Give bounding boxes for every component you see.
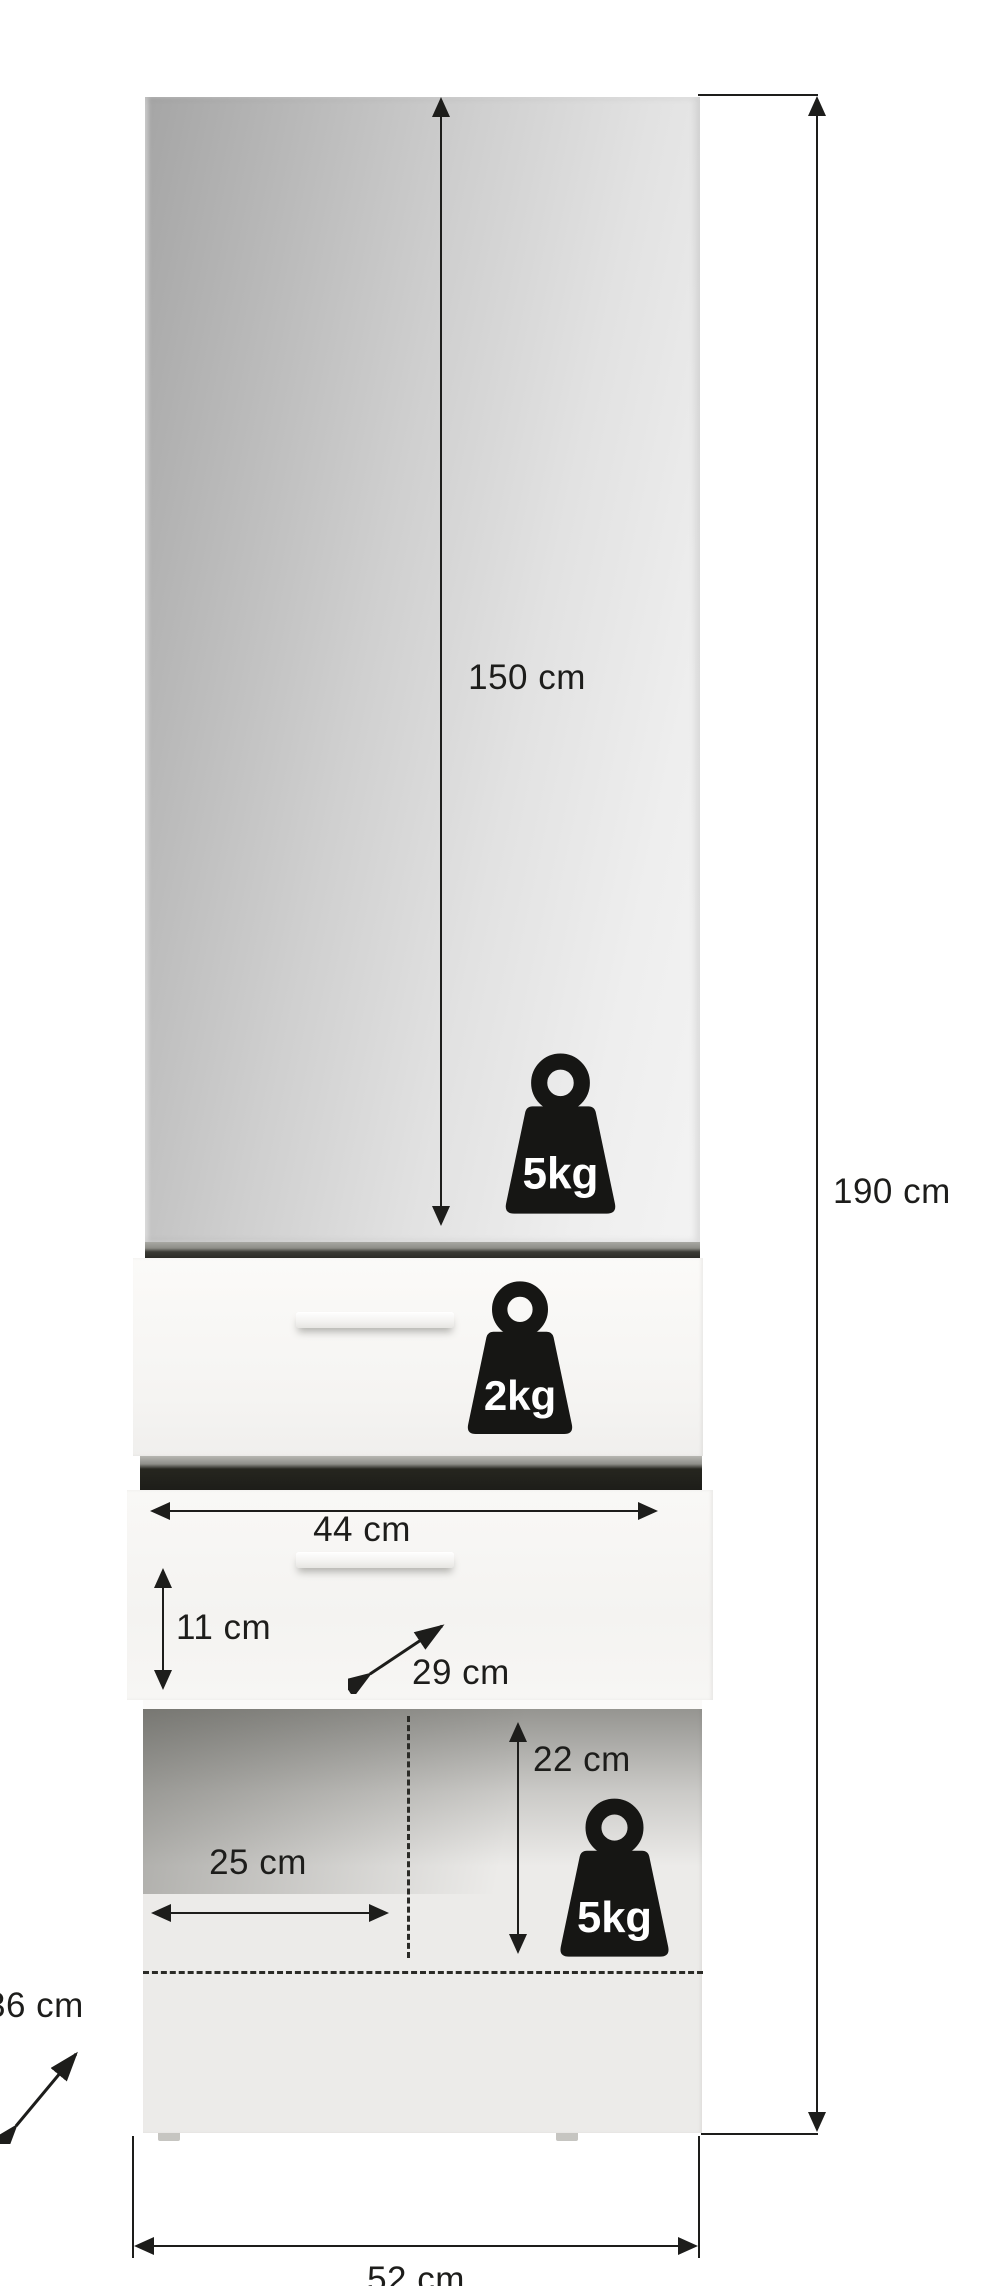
- dim-niche-width-label: 25 cm: [178, 1845, 338, 1882]
- compartment-vertical-dashed-guide: [407, 1716, 410, 1958]
- arrow-up-icon: [154, 1568, 172, 1588]
- dim-cabinet-depth-arrow: [0, 2038, 94, 2144]
- arrow-left-icon: [151, 1904, 171, 1922]
- weight-5kg-label: 5kg: [577, 1894, 652, 1942]
- dim-drawer-width-label: 44 cm: [282, 1512, 442, 1549]
- arrow-down-icon: [808, 2112, 826, 2132]
- top-drawer-front: [133, 1258, 703, 1456]
- drawer-gap-band: [140, 1456, 702, 1490]
- arrow-right-icon: [638, 1502, 658, 1520]
- weight-2kg-label: 2kg: [484, 1372, 556, 1419]
- dim-total-width-line: [146, 2245, 686, 2247]
- arrow-right-icon: [678, 2237, 698, 2255]
- dim-niche-height-label: 22 cm: [533, 1742, 631, 1779]
- arrow-up-icon: [808, 96, 826, 116]
- compartment-shelf-edge: [143, 1700, 702, 1709]
- arrow-up-icon: [432, 97, 450, 117]
- dim-total-width-extension-right: [698, 2136, 700, 2258]
- plinth-foot-left: [158, 2133, 180, 2141]
- weight-2kg-icon: 2kg: [450, 1280, 590, 1441]
- dim-niche-height-line: [517, 1738, 519, 1938]
- dim-door-height-label: 150 cm: [452, 660, 602, 697]
- dim-niche-width-line: [167, 1912, 373, 1914]
- weight-5kg-icon: 5kg: [487, 1052, 634, 1221]
- dim-drawer-depth-label: 29 cm: [412, 1655, 510, 1692]
- dimension-diagram: 150 cm 190 cm 44 cm 11 cm 29 cm 22 cm 25…: [0, 0, 984, 2286]
- compartment-horizontal-dashed-guide: [143, 1971, 703, 1974]
- arrow-up-icon: [509, 1722, 527, 1742]
- dim-drawer-front-height-line: [162, 1584, 164, 1674]
- dim-cabinet-depth-label: 36 cm: [0, 1988, 84, 2025]
- arrow-right-icon: [369, 1904, 389, 1922]
- dim-total-width-label: 52 cm: [336, 2262, 496, 2286]
- middle-drawer-handle: [296, 1552, 454, 1568]
- arrow-left-icon: [150, 1502, 170, 1520]
- weight-5kg-icon: 5kg: [542, 1797, 687, 1964]
- arrow-down-icon: [432, 1206, 450, 1226]
- arrow-left-icon: [134, 2237, 154, 2255]
- arrow-down-icon: [509, 1934, 527, 1954]
- top-drawer-handle: [296, 1312, 454, 1328]
- dim-total-height-extension-top: [698, 94, 818, 96]
- door-bottom-shadow-band: [145, 1242, 700, 1258]
- dim-total-height-label: 190 cm: [833, 1174, 984, 1211]
- weight-5kg-label: 5kg: [523, 1150, 599, 1199]
- dim-total-height-line: [816, 112, 818, 2116]
- arrow-down-icon: [154, 1670, 172, 1690]
- plinth-foot-right: [556, 2133, 578, 2141]
- dim-total-height-extension-bottom: [701, 2133, 818, 2135]
- dim-door-height-line: [440, 115, 442, 1208]
- dim-drawer-front-height-label: 11 cm: [176, 1610, 271, 1647]
